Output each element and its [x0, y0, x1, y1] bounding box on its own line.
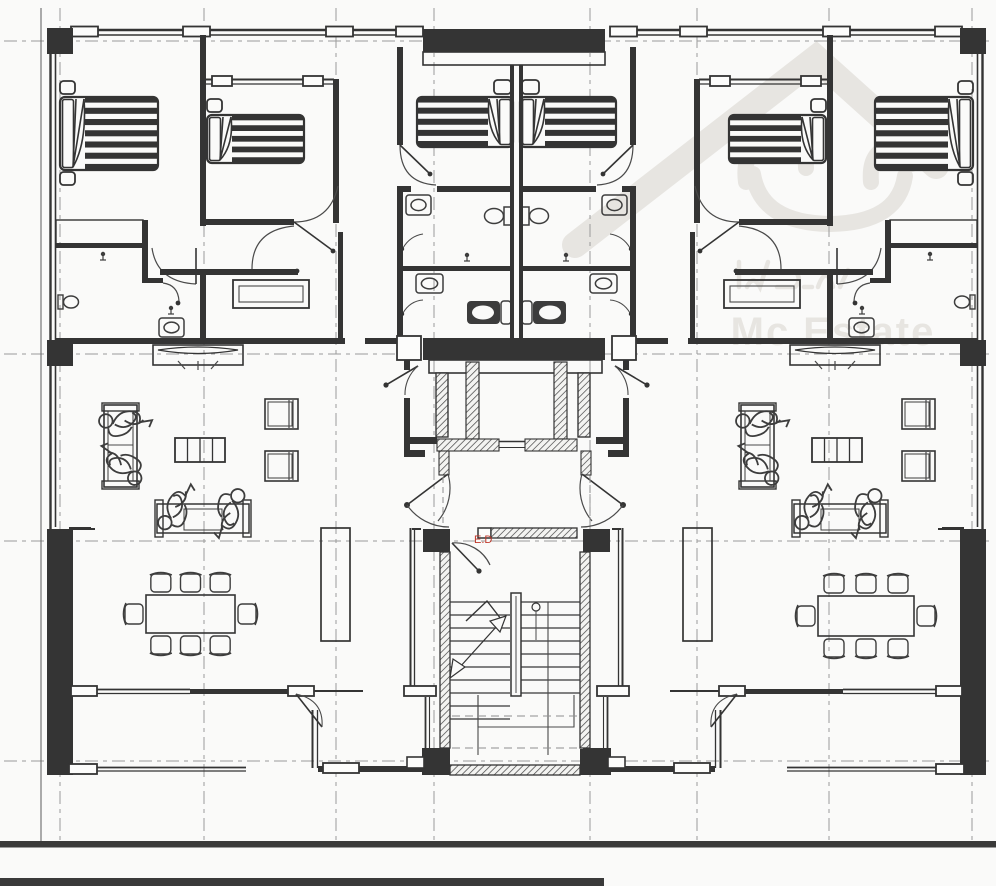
svg-text:E.D: E.D: [474, 534, 492, 546]
